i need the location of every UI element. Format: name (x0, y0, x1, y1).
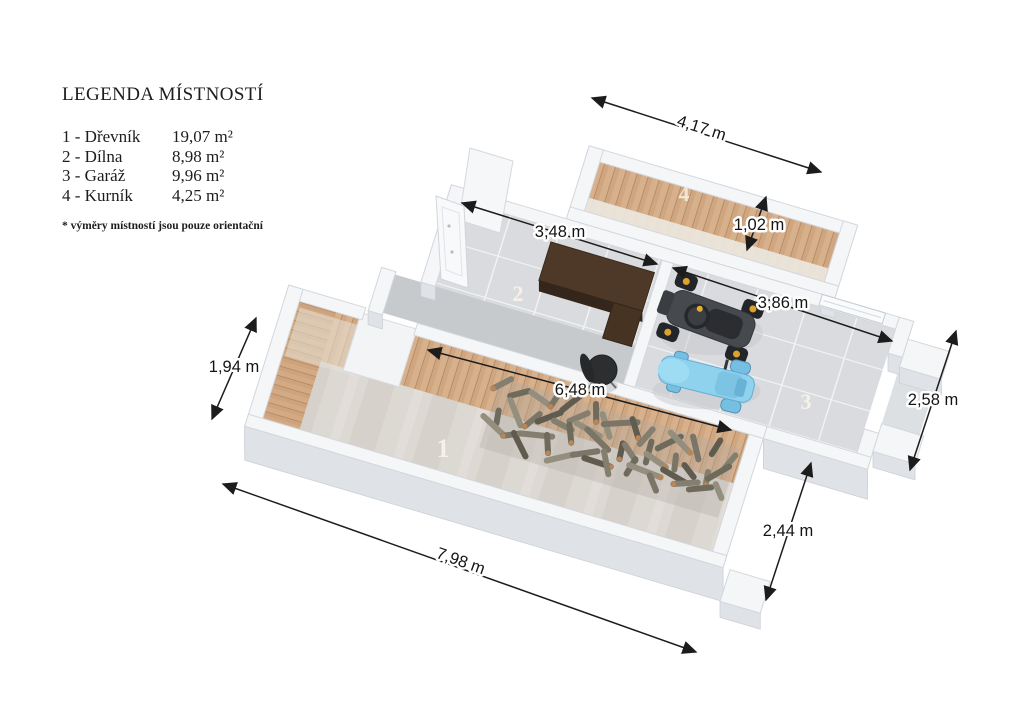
legend-item-area: 19,07 m² (172, 127, 264, 147)
legend-item-area: 9,96 m² (172, 166, 264, 186)
legend-item: 3 - Garáž 9,96 m² (62, 166, 264, 186)
floor-plan-page: 4,17 m 1,02 m 3,48 m 3,86 m 1,94 m 6,48 … (0, 0, 1024, 724)
room-legend: LEGENDA MÍSTNOSTÍ 1 - Dřevník 19,07 m² 2… (62, 84, 264, 232)
dimension-label: 1,02 m (734, 216, 784, 234)
dimension-woodshed-depth: 2,44 m (763, 463, 813, 600)
legend-item-label: 2 - Dílna (62, 147, 172, 167)
room-number-4: 4 (679, 181, 690, 206)
legend-item: 1 - Dřevník 19,07 m² (62, 127, 264, 147)
legend-item-label: 1 - Dřevník (62, 127, 172, 147)
dimension-label: 4,17 m (675, 112, 729, 144)
legend-item: 4 - Kurník 4,25 m² (62, 186, 264, 206)
dimension-label: 2,44 m (763, 522, 813, 540)
room-number-1: 1 (437, 434, 450, 463)
dimension-label: 1,94 m (209, 358, 259, 376)
dimension-label: 6,48 m (555, 381, 605, 399)
dimension-label: 3,48 m (535, 223, 585, 241)
legend-item-label: 4 - Kurník (62, 186, 172, 206)
legend-item-area: 4,25 m² (172, 186, 264, 206)
room-number-2: 2 (513, 281, 524, 306)
room-number-3: 3 (801, 389, 812, 414)
open-door-leaf (436, 196, 468, 288)
legend-item-label: 3 - Garáž (62, 166, 172, 186)
legend-title: LEGENDA MÍSTNOSTÍ (62, 84, 264, 106)
dimension-label: 2,58 m (908, 391, 958, 409)
dimension-label: 7,98 m (434, 544, 488, 578)
legend-item-area: 8,98 m² (172, 147, 264, 167)
legend-note: * výměry místností jsou pouze orientační (62, 220, 264, 232)
dimension-label: 3,86 m (758, 294, 808, 312)
legend-item: 2 - Dílna 8,98 m² (62, 147, 264, 167)
